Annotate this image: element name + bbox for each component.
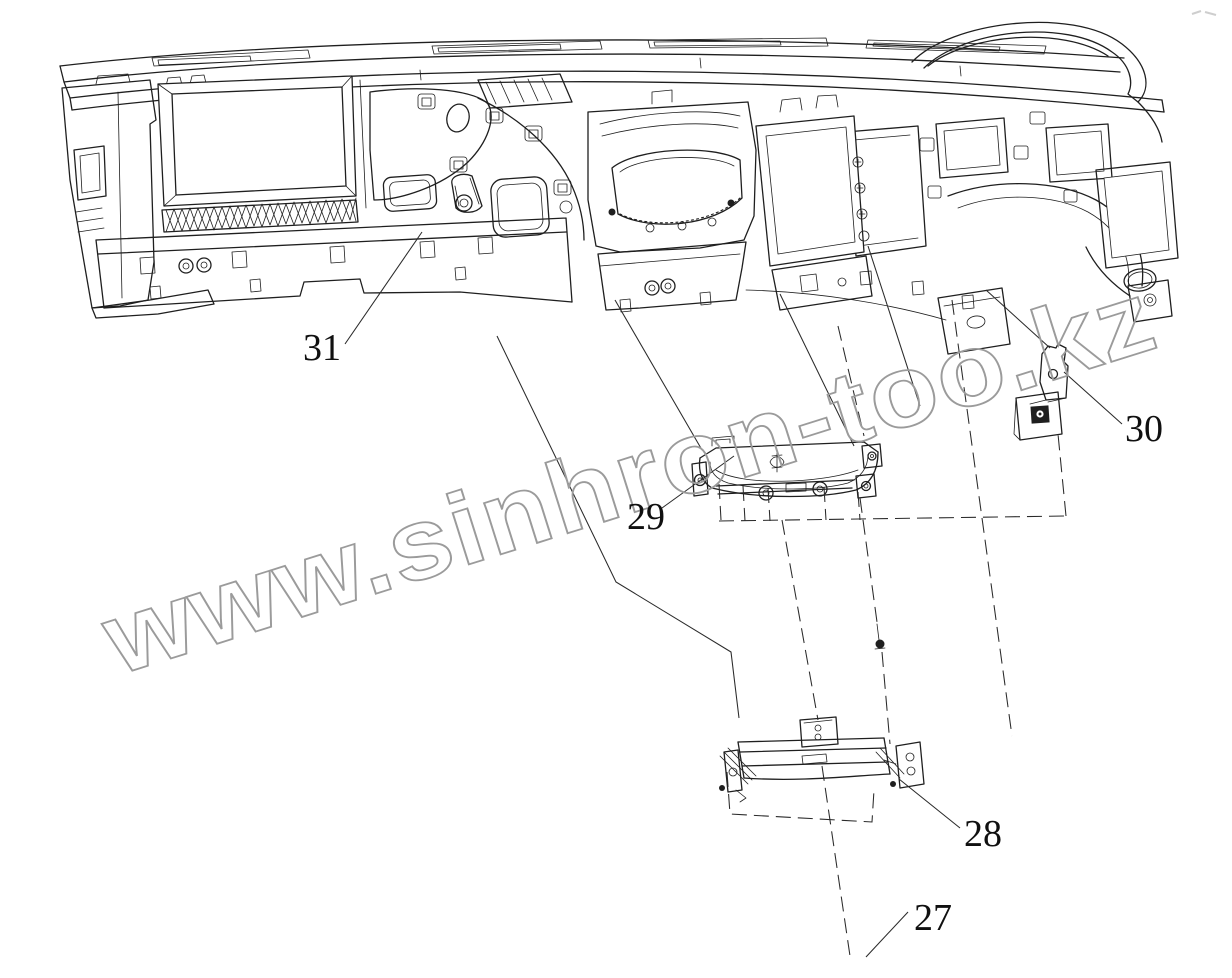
parts-diagram-svg: www.sinhron-too.kz 31 29 30 28 27	[0, 0, 1232, 978]
callout-31: 31	[303, 327, 341, 369]
callout-28: 28	[964, 813, 1002, 855]
callout-27: 27	[914, 897, 952, 939]
callout-30: 30	[1125, 408, 1163, 450]
diagram-canvas: www.sinhron-too.kz 31 29 30 28 27	[0, 0, 1232, 978]
callout-29: 29	[627, 496, 665, 538]
